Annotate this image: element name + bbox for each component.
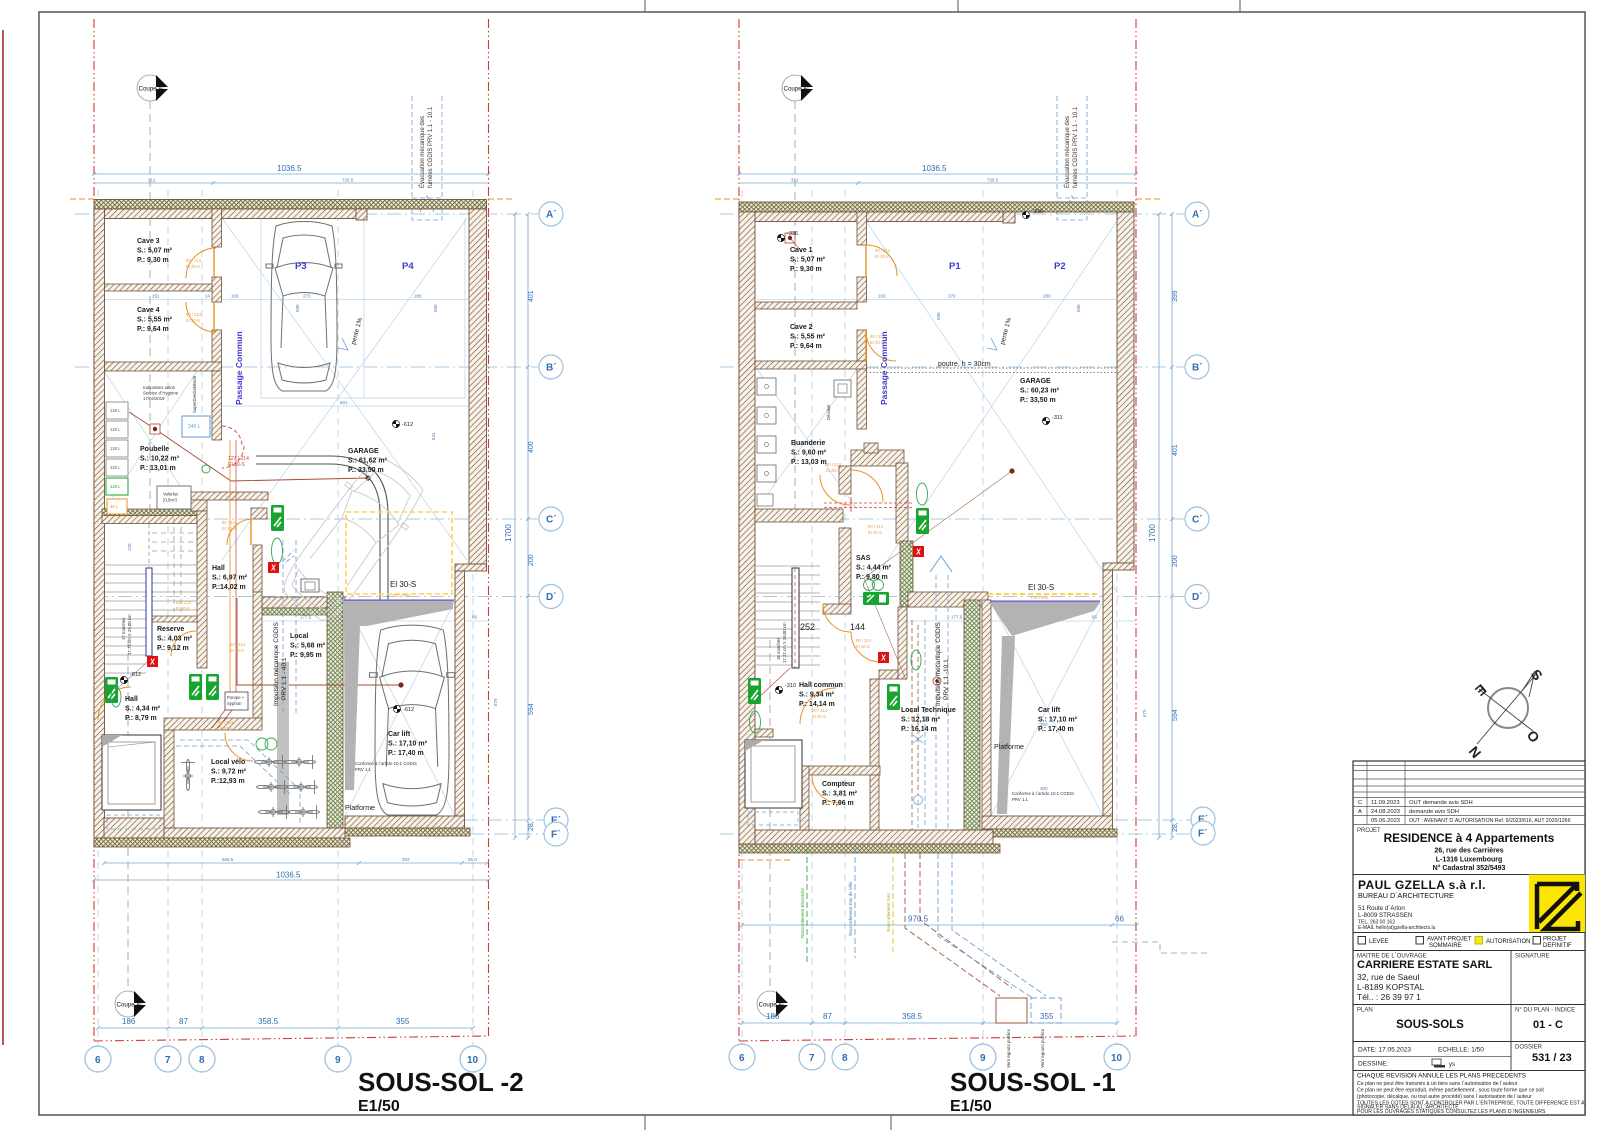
svg-text:90 / 214: 90 / 214 xyxy=(812,708,828,713)
svg-text:S.: 5,07 m²: S.: 5,07 m² xyxy=(790,257,826,264)
svg-text:EI 30-S: EI 30-S xyxy=(218,726,232,731)
svg-text:40 L: 40 L xyxy=(110,504,119,509)
svg-text:28,: 28, xyxy=(1172,822,1179,832)
svg-text:fumées CGDIS PRV 1.1 - 10.1: fumées CGDIS PRV 1.1 - 10.1 xyxy=(1073,106,1079,188)
svg-text:ECHELLE: 1/50: ECHELLE: 1/50 xyxy=(1438,1047,1484,1054)
svg-text:668.5: 668.5 xyxy=(222,857,234,862)
svg-text:SOUS-SOL -2: SOUS-SOL -2 xyxy=(358,1067,524,1097)
svg-text:P.: 16,14 m: P.: 16,14 m xyxy=(901,726,937,733)
svg-text:87: 87 xyxy=(179,1017,188,1026)
svg-text:EI 30-S: EI 30-S xyxy=(856,644,870,649)
svg-text:6: 6 xyxy=(95,1055,101,1066)
svg-text:L-8009 STRASSEN: L-8009 STRASSEN xyxy=(1358,912,1412,919)
svg-text:355: 355 xyxy=(1040,1012,1054,1021)
svg-text:Pompe +: Pompe + xyxy=(227,695,245,700)
svg-text:El 30-S: El 30-S xyxy=(390,580,416,589)
svg-text:E-MAIL hello(at)gzella-archite: E-MAIL hello(at)gzella-architects.lu xyxy=(1358,925,1436,931)
svg-text:66: 66 xyxy=(1115,915,1124,924)
svg-text:S.: 9,34 m²: S.: 9,34 m² xyxy=(799,692,835,699)
svg-text:Cave 3: Cave 3 xyxy=(137,238,160,245)
svg-text:S.: 9,72 m²: S.: 9,72 m² xyxy=(211,769,247,776)
svg-text:S.: 5,55 m²: S.: 5,55 m² xyxy=(790,334,826,341)
svg-text:6: 6 xyxy=(739,1053,745,1064)
svg-text:PAUL GZELLA s.à r.l.: PAUL GZELLA s.à r.l. xyxy=(1358,878,1486,892)
svg-text:CARRIERE ESTATE SARL: CARRIERE ESTATE SARL xyxy=(1357,959,1493,971)
svg-text:Raccordement Eau de Ville: Raccordement Eau de Ville xyxy=(848,881,853,936)
svg-text:200: 200 xyxy=(528,554,535,566)
svg-text:P.: 9,30 m: P.: 9,30 m xyxy=(790,266,822,273)
svg-text:Syphon: Syphon xyxy=(227,701,242,706)
svg-text:P.: 9,30 m: P.: 9,30 m xyxy=(137,257,169,264)
svg-text:355: 355 xyxy=(396,1017,410,1026)
svg-text:Cave 2: Cave 2 xyxy=(790,324,813,331)
svg-text:Valorlux: Valorlux xyxy=(163,492,179,497)
svg-text:270: 270 xyxy=(948,294,956,299)
svg-text:120 L: 120 L xyxy=(110,408,121,413)
svg-text:87: 87 xyxy=(823,1012,832,1021)
svg-text:EI 30-S: EI 30-S xyxy=(812,714,826,719)
svg-text:P.: 17,40 m: P.: 17,40 m xyxy=(388,750,424,757)
svg-text:P.:12,93 m: P.:12,93 m xyxy=(211,778,245,785)
svg-text:631: 631 xyxy=(431,432,436,440)
svg-text:S.: 17,10 m²: S.: 17,10 m² xyxy=(1038,717,1078,724)
svg-text:S.: 5,07 m²: S.: 5,07 m² xyxy=(137,248,173,255)
svg-text:P.: 8,79 m: P.: 8,79 m xyxy=(125,715,157,722)
svg-text:Hall commun: Hall commun xyxy=(799,682,843,689)
svg-text:EI 30-S: EI 30-S xyxy=(875,254,889,259)
svg-text:Évacuation mécanique des: Évacuation mécanique des xyxy=(419,116,426,188)
svg-text:500: 500 xyxy=(433,304,438,312)
svg-text:9: 9 xyxy=(980,1053,986,1064)
svg-text:Ce plan ne peut être reproduit: Ce plan ne peut être reproduit, même par… xyxy=(1357,1088,1544,1094)
svg-text:399: 399 xyxy=(1172,290,1179,302)
svg-text:Hall: Hall xyxy=(212,565,225,572)
svg-text:26, rue des Carrières: 26, rue des Carrières xyxy=(1434,848,1503,855)
svg-text:D´: D´ xyxy=(1192,592,1203,603)
svg-text:SOUS-SOL -1: SOUS-SOL -1 xyxy=(950,1067,1116,1097)
svg-text:P.: 17,40 m: P.: 17,40 m xyxy=(1038,726,1074,733)
svg-text:120 L: 120 L xyxy=(110,465,121,470)
svg-text:EI 30-S: EI 30-S xyxy=(826,468,840,473)
svg-text:L-1316 Luxembourg: L-1316 Luxembourg xyxy=(1436,857,1503,864)
svg-text:OUT : AVENANT D´AUTORISATION R: OUT : AVENANT D´AUTORISATION Ref. 9/2023… xyxy=(1409,818,1571,824)
svg-text:PROJET: PROJET xyxy=(1357,828,1381,834)
svg-text:EI 30-S: EI 30-S xyxy=(222,526,236,531)
svg-text:120 L: 120 L xyxy=(110,427,121,432)
svg-text:S.: 4,44 m²: S.: 4,44 m² xyxy=(856,565,892,572)
svg-text:05.06.2023: 05.06.2023 xyxy=(1371,818,1400,824)
svg-text:PRV 1.1: PRV 1.1 xyxy=(355,767,372,772)
svg-text:401: 401 xyxy=(528,290,535,302)
svg-text:500: 500 xyxy=(936,312,941,320)
svg-text:LEVEE: LEVEE xyxy=(1369,939,1388,945)
svg-text:(0,5m²): (0,5m²) xyxy=(163,498,177,503)
svg-text:SIGNATURE: SIGNATURE xyxy=(1515,954,1550,960)
svg-text:601: 601 xyxy=(340,400,348,405)
svg-text:EI 30-S: EI 30-S xyxy=(230,648,244,653)
svg-text:P.: 33,50 m: P.: 33,50 m xyxy=(348,467,384,474)
svg-text:(photocopie, décalque, ou tout: (photocopie, décalque, ou tout autre pro… xyxy=(1357,1094,1532,1100)
svg-text:P.: 13,01 m: P.: 13,01 m xyxy=(140,465,176,472)
svg-text:Raccordement Electricité: Raccordement Electricité xyxy=(800,887,805,938)
svg-text:10: 10 xyxy=(467,1055,479,1066)
svg-text:90 / 214: 90 / 214 xyxy=(230,642,246,647)
svg-text:AVANT-PROJET: AVANT-PROJET xyxy=(1427,937,1472,943)
svg-text:S.: 6,97 m²: S.: 6,97 m² xyxy=(212,575,248,582)
svg-text:90 / 214: 90 / 214 xyxy=(218,720,234,725)
svg-text:A´: A´ xyxy=(1192,210,1203,221)
svg-text:-336: -336 xyxy=(787,231,798,237)
svg-text:A: A xyxy=(1358,809,1362,815)
svg-text:Poubelle: Poubelle xyxy=(140,446,169,453)
svg-text:01 - C: 01 - C xyxy=(1533,1019,1563,1031)
svg-text:El 30-S: El 30-S xyxy=(1028,583,1054,592)
svg-text:1700: 1700 xyxy=(1148,524,1157,542)
svg-text:PROJET: PROJET xyxy=(1543,937,1567,943)
svg-text:SAS: SAS xyxy=(856,555,871,562)
svg-text:B´: B´ xyxy=(1192,363,1203,374)
svg-text:17,76 cm X 26,00 cm: 17,76 cm X 26,00 cm xyxy=(127,614,132,655)
svg-text:S.: 9,60 m²: S.: 9,60 m² xyxy=(791,450,827,457)
svg-text:EI 30-S: EI 30-S xyxy=(176,606,190,611)
svg-text:24: 24 xyxy=(205,294,211,299)
svg-text:Service d´Hygiene: Service d´Hygiene xyxy=(143,391,179,396)
svg-text:Cave 4: Cave 4 xyxy=(137,307,160,314)
svg-text:7: 7 xyxy=(165,1055,171,1066)
svg-text:90 / 214: 90 / 214 xyxy=(868,524,884,529)
svg-text:28,: 28, xyxy=(528,821,535,831)
svg-text:P.:14,02 m: P.:14,02 m xyxy=(212,584,246,591)
svg-text:P2: P2 xyxy=(1054,261,1066,272)
svg-text:9: 9 xyxy=(335,1055,341,1066)
svg-text:Impulsion mécanique CGDIS: Impulsion mécanique CGDIS xyxy=(273,622,280,706)
svg-text:312: 312 xyxy=(791,178,799,183)
svg-text:E1/50: E1/50 xyxy=(950,1098,992,1115)
svg-text:PRV 1.1 -10.1: PRV 1.1 -10.1 xyxy=(943,659,950,700)
svg-text:C´: C´ xyxy=(546,515,557,526)
svg-text:Platforme: Platforme xyxy=(994,744,1024,751)
svg-text:970.5: 970.5 xyxy=(908,915,929,924)
svg-text:400: 400 xyxy=(528,441,535,453)
svg-text:-612: -612 xyxy=(130,672,141,678)
svg-text:EI 30-S: EI 30-S xyxy=(186,318,200,323)
svg-text:Passage Commun: Passage Commun xyxy=(879,331,889,405)
svg-text:32, rue de Saeul: 32, rue de Saeul xyxy=(1357,972,1419,982)
svg-text:Indications selon: Indications selon xyxy=(143,385,176,390)
svg-text:S.: 4,03 m²: S.: 4,03 m² xyxy=(157,636,193,643)
svg-text:291: 291 xyxy=(152,294,160,299)
svg-text:531 / 23: 531 / 23 xyxy=(1532,1052,1572,1064)
svg-text:PLAN: PLAN xyxy=(1357,1008,1373,1014)
svg-text:51 Route d´Arlon: 51 Route d´Arlon xyxy=(1358,905,1405,912)
svg-text:S.: 10,22 m³: S.: 10,22 m³ xyxy=(140,456,180,463)
svg-text:PRV 1.1: PRV 1.1 xyxy=(1012,797,1029,802)
svg-text:EI 30-S: EI 30-S xyxy=(228,462,245,468)
svg-text:358.5: 358.5 xyxy=(258,1017,279,1026)
svg-text:100: 100 xyxy=(878,294,886,299)
svg-text:186: 186 xyxy=(122,1017,136,1026)
svg-text:Cave 1: Cave 1 xyxy=(790,247,813,254)
svg-text:PRV 1.1 - 40.1: PRV 1.1 - 40.1 xyxy=(281,657,288,700)
svg-text:594: 594 xyxy=(1172,709,1179,721)
svg-text:S.: 3,81 m²: S.: 3,81 m² xyxy=(822,791,858,798)
svg-text:Compteur: Compteur xyxy=(822,781,855,788)
svg-text:Passage Commun: Passage Commun xyxy=(234,331,244,405)
svg-text:P.: 14,14 m: P.: 14,14 m xyxy=(799,701,835,708)
svg-text:1036.5: 1036.5 xyxy=(922,164,947,173)
svg-text:CHAQUE REVISION ANNULE LES PLA: CHAQUE REVISION ANNULE LES PLANS PRECEDE… xyxy=(1357,1073,1526,1080)
svg-text:144: 144 xyxy=(850,622,865,632)
svg-text:Car lift: Car lift xyxy=(388,731,411,738)
svg-text:Dévidoir: Dévidoir xyxy=(826,404,831,420)
svg-text:679: 679 xyxy=(1142,709,1147,717)
svg-text:Local: Local xyxy=(290,633,308,640)
svg-text:DOSSIER: DOSSIER xyxy=(1515,1045,1543,1051)
svg-text:P.: 9,80 m: P.: 9,80 m xyxy=(856,574,888,581)
svg-text:120: 120 xyxy=(127,543,132,551)
svg-text:Vers egouts publics: Vers egouts publics xyxy=(1040,1028,1045,1068)
svg-text:Hall: Hall xyxy=(125,696,138,703)
svg-text:90 / 214: 90 / 214 xyxy=(186,312,202,317)
svg-text:DEFINITIF: DEFINITIF xyxy=(1543,943,1572,949)
svg-text:poutre, h = 30cm: poutre, h = 30cm xyxy=(938,361,991,368)
svg-text:P.: 33,50 m: P.: 33,50 m xyxy=(1020,397,1056,404)
svg-text:S.: 5,68 m²: S.: 5,68 m² xyxy=(290,643,326,650)
svg-text:A´: A´ xyxy=(546,210,557,221)
svg-text:280: 280 xyxy=(1043,294,1051,299)
svg-text:11.09.2023: 11.09.2023 xyxy=(1371,800,1400,806)
svg-text:-336: -336 xyxy=(1032,209,1043,215)
svg-text:P.: 9,95 m: P.: 9,95 m xyxy=(290,652,322,659)
svg-text:RESIDENCE à 4 Appartements: RESIDENCE à 4 Appartements xyxy=(1384,831,1555,845)
svg-text:N° DU PLAN - INDICE: N° DU PLAN - INDICE xyxy=(1515,1008,1575,1014)
svg-text:Car lift: Car lift xyxy=(1038,707,1061,714)
svg-text:Local Technique: Local Technique xyxy=(901,707,956,714)
svg-text:7: 7 xyxy=(809,1053,815,1064)
svg-text:Vers egouts publics: Vers egouts publics xyxy=(1006,1028,1011,1068)
svg-text:358.5: 358.5 xyxy=(902,1012,923,1021)
svg-text:Local vélo: Local vélo xyxy=(211,759,245,766)
svg-text:1036.5: 1036.5 xyxy=(276,871,301,880)
svg-text:P4: P4 xyxy=(402,261,414,272)
svg-text:Conforme à l´article 10.1 CGDI: Conforme à l´article 10.1 CGDIS xyxy=(355,761,417,766)
svg-text:270: 270 xyxy=(303,294,311,299)
svg-text:594: 594 xyxy=(528,703,535,715)
svg-text:GARAGE: GARAGE xyxy=(348,448,379,455)
svg-text:P3: P3 xyxy=(295,261,307,272)
svg-text:Évacuation mécanique des: Évacuation mécanique des xyxy=(1064,116,1071,188)
svg-text:312: 312 xyxy=(148,178,156,183)
svg-text:-612: -612 xyxy=(402,422,413,428)
svg-text:252: 252 xyxy=(800,622,815,632)
svg-text:DATE: 17.05.2023: DATE: 17.05.2023 xyxy=(1358,1047,1411,1054)
svg-text:8: 8 xyxy=(199,1055,205,1066)
svg-text:EI 30-S: EI 30-S xyxy=(186,264,200,269)
svg-text:P.: 9,64 m: P.: 9,64 m xyxy=(137,326,169,333)
svg-text:726.5: 726.5 xyxy=(342,178,354,183)
svg-text:C: C xyxy=(1358,800,1362,806)
svg-text:90 / 214: 90 / 214 xyxy=(186,258,202,263)
svg-text:679: 679 xyxy=(493,698,498,706)
svg-text:S.: 5,55 m²: S.: 5,55 m² xyxy=(137,317,173,324)
svg-text:P.: 9,12 m: P.: 9,12 m xyxy=(157,645,189,652)
svg-text:90 / 214: 90 / 214 xyxy=(826,462,842,467)
svg-text:P1: P1 xyxy=(949,261,961,272)
svg-text:TYu.7950: TYu.7950 xyxy=(392,593,411,598)
svg-text:TYu.7950: TYu.7950 xyxy=(1030,595,1049,600)
svg-text:B´: B´ xyxy=(546,363,557,374)
svg-text:DESSINE:: DESSINE: xyxy=(1358,1061,1389,1068)
svg-text:18 marches: 18 marches xyxy=(776,638,781,660)
svg-text:fumées CGDIS PRV 1.1 - 10.1: fumées CGDIS PRV 1.1 - 10.1 xyxy=(428,106,434,188)
svg-text:D´: D´ xyxy=(546,592,557,603)
svg-text:90 / 214: 90 / 214 xyxy=(856,638,872,643)
svg-text:10: 10 xyxy=(1111,1053,1123,1064)
svg-text:120 L: 120 L xyxy=(110,446,121,451)
svg-text:Reserve: Reserve xyxy=(157,626,184,633)
svg-text:AUTORISATION: AUTORISATION xyxy=(1486,939,1530,945)
svg-text:OUT demande avis SDH: OUT demande avis SDH xyxy=(1409,800,1473,806)
svg-text:GARAGE: GARAGE xyxy=(1020,378,1051,385)
svg-text:Platforme: Platforme xyxy=(345,805,375,812)
svg-text:-612: -612 xyxy=(403,707,414,713)
svg-text:90 / 214: 90 / 214 xyxy=(875,248,891,253)
svg-text:240 L: 240 L xyxy=(188,424,201,430)
svg-text:280: 280 xyxy=(414,294,422,299)
svg-text:F´: F´ xyxy=(551,830,560,841)
svg-text:BUREAU D´ARCHITECTURE: BUREAU D´ARCHITECTURE xyxy=(1358,891,1454,900)
svg-text:90 / 214: 90 / 214 xyxy=(176,600,192,605)
svg-text:ys: ys xyxy=(1449,1062,1455,1068)
svg-text:Tél.. : 26 39 97 1: Tél.. : 26 39 97 1 xyxy=(1357,992,1421,1002)
svg-text:24.08.2023: 24.08.2023 xyxy=(1371,809,1400,815)
svg-text:1036.5: 1036.5 xyxy=(277,164,302,173)
svg-text:SOMMAIRE: SOMMAIRE xyxy=(1429,943,1462,949)
svg-text:F´: F´ xyxy=(1198,829,1207,840)
svg-text:100: 100 xyxy=(231,294,239,299)
svg-text:SOUS-SOLS: SOUS-SOLS xyxy=(1396,1019,1464,1031)
svg-text:P.: 13,03 m: P.: 13,03 m xyxy=(791,459,827,466)
svg-text:186: 186 xyxy=(766,1012,780,1021)
svg-text:401: 401 xyxy=(1172,444,1179,456)
svg-text:N° Cadastral 352/5493: N° Cadastral 352/5493 xyxy=(1433,864,1506,872)
svg-text:P.: 9,64 m: P.: 9,64 m xyxy=(790,343,822,350)
svg-text:500: 500 xyxy=(1076,304,1081,312)
svg-text:Impulsion mécanique CGDIS: Impulsion mécanique CGDIS xyxy=(935,622,942,706)
svg-text:S.: 60,23 m²: S.: 60,23 m² xyxy=(1020,388,1060,395)
svg-text:-311: -311 xyxy=(1052,415,1063,421)
svg-text:P.: 7,96 m: P.: 7,96 m xyxy=(822,800,854,807)
svg-text:EI 30-S: EI 30-S xyxy=(868,530,882,535)
svg-text:65: 65 xyxy=(1092,615,1098,620)
svg-text:SuperDreckskëscht: SuperDreckskëscht xyxy=(192,375,197,413)
svg-text:-310: -310 xyxy=(785,683,796,689)
svg-text:Raccordement Gaz: Raccordement Gaz xyxy=(886,892,891,932)
svg-text:17/04/2019: 17/04/2019 xyxy=(143,396,165,401)
svg-text:Conforme à l´article 10.1 CGDI: Conforme à l´article 10.1 CGDIS xyxy=(1012,791,1074,796)
svg-text:66.0: 66.0 xyxy=(468,857,477,862)
svg-text:302: 302 xyxy=(402,857,410,862)
svg-text:60: 60 xyxy=(472,615,478,620)
svg-text:S.: 12,18 m²: S.: 12,18 m² xyxy=(901,717,941,724)
svg-text:17,22 cm X 26,00 cm: 17,22 cm X 26,00 cm xyxy=(782,622,787,663)
svg-text:500: 500 xyxy=(295,304,300,312)
svg-text:200: 200 xyxy=(1172,555,1179,567)
svg-text:C´: C´ xyxy=(1192,515,1203,526)
svg-text:8: 8 xyxy=(842,1053,848,1064)
svg-text:POUR LES OUVRAGES STATIQUES CO: POUR LES OUVRAGES STATIQUES CONSULTEZ LE… xyxy=(1357,1109,1546,1115)
svg-text:120 L: 120 L xyxy=(110,484,121,489)
svg-text:S.: 17,10 m²: S.: 17,10 m² xyxy=(388,741,428,748)
svg-text:177.5: 177.5 xyxy=(951,615,963,620)
svg-text:17 marches: 17 marches xyxy=(121,618,126,640)
svg-text:L-8189 KOPSTAL: L-8189 KOPSTAL xyxy=(1357,982,1425,992)
svg-text:S.: 61,62 m²: S.: 61,62 m² xyxy=(348,458,388,465)
svg-text:Buanderie: Buanderie xyxy=(791,440,825,447)
svg-text:Ce plan ne peut être transmis: Ce plan ne peut être transmis à un tiers… xyxy=(1357,1081,1518,1087)
svg-text:E1/50: E1/50 xyxy=(358,1098,400,1115)
svg-text:1700: 1700 xyxy=(504,524,513,542)
svg-text:726.5: 726.5 xyxy=(987,178,999,183)
svg-text:S.: 4,34 m²: S.: 4,34 m² xyxy=(125,706,161,713)
svg-text:demande avis SDH: demande avis SDH xyxy=(1409,809,1459,815)
svg-text:90 / 214: 90 / 214 xyxy=(222,520,238,525)
